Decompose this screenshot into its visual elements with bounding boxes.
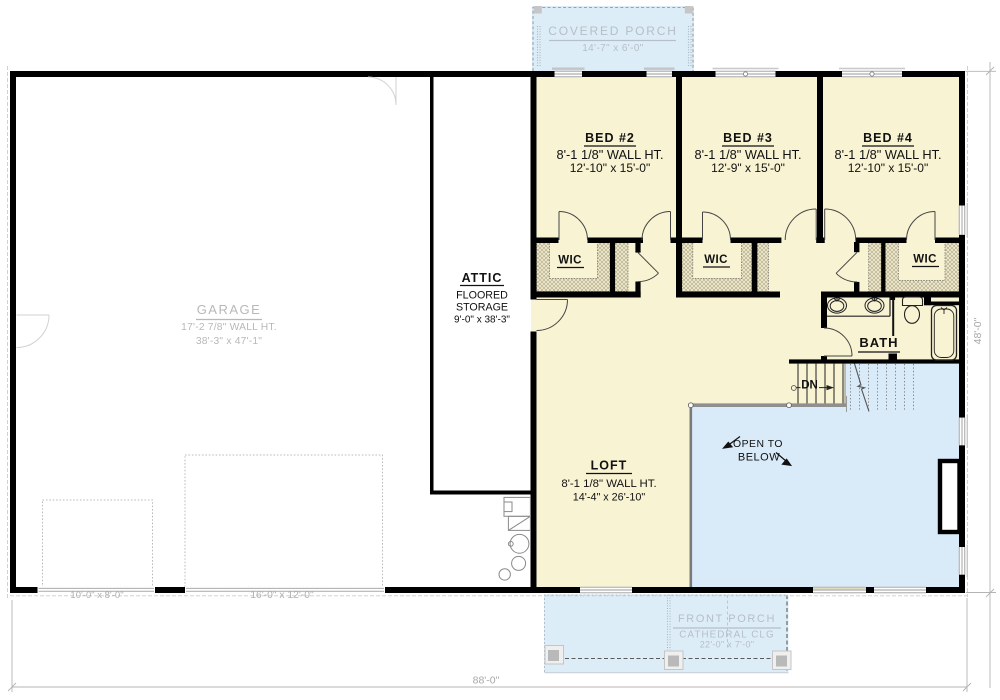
svg-text:WIC: WIC (704, 254, 728, 266)
svg-text:8'-1 1/8" WALL HT.: 8'-1 1/8" WALL HT. (694, 147, 801, 162)
svg-text:9'-0" x 38'-3": 9'-0" x 38'-3" (454, 315, 510, 326)
svg-text:88'-0": 88'-0" (473, 675, 500, 687)
svg-text:38'-3" x 47'-1": 38'-3" x 47'-1" (196, 336, 262, 347)
svg-text:LOFT: LOFT (591, 459, 628, 473)
svg-text:48'-0": 48'-0" (972, 317, 984, 344)
svg-text:WIC: WIC (913, 254, 937, 266)
svg-text:BED #4: BED #4 (863, 131, 913, 145)
svg-text:10'-0" x 8'-0": 10'-0" x 8'-0" (70, 590, 123, 601)
svg-text:BED #3: BED #3 (723, 131, 773, 145)
svg-text:WIC: WIC (558, 255, 582, 267)
svg-text:12'-10" x 15'-0": 12'-10" x 15'-0" (848, 161, 928, 175)
svg-text:COVERED PORCH: COVERED PORCH (548, 24, 677, 38)
svg-text:GARAGE: GARAGE (197, 302, 262, 317)
svg-text:14'-4" x 26'-10": 14'-4" x 26'-10" (573, 492, 646, 504)
svg-text:FRONT PORCH: FRONT PORCH (678, 613, 776, 625)
svg-text:FLOORED: FLOORED (456, 290, 508, 302)
svg-text:22'-0" x 7'-0": 22'-0" x 7'-0" (700, 640, 755, 650)
svg-text:OPEN TO: OPEN TO (733, 439, 783, 450)
svg-text:12'-10" x 15'-0": 12'-10" x 15'-0" (570, 161, 650, 175)
svg-text:STORAGE: STORAGE (456, 302, 508, 314)
svg-text:12'-9" x 15'-0": 12'-9" x 15'-0" (711, 161, 785, 175)
svg-text:8'-1 1/8" WALL HT.: 8'-1 1/8" WALL HT. (561, 478, 656, 490)
svg-text:ATTIC: ATTIC (462, 271, 503, 285)
svg-text:17'-2 7/8" WALL HT.: 17'-2 7/8" WALL HT. (181, 322, 277, 333)
svg-text:14'-7" x 6'-0": 14'-7" x 6'-0" (582, 43, 644, 54)
svg-text:8'-1 1/8" WALL HT.: 8'-1 1/8" WALL HT. (556, 147, 663, 162)
svg-text:DN: DN (801, 380, 818, 392)
svg-text:BATH: BATH (859, 335, 898, 350)
svg-text:8'-1 1/8" WALL HT.: 8'-1 1/8" WALL HT. (834, 147, 941, 162)
svg-text:16'-0" x 12'-0": 16'-0" x 12'-0" (250, 590, 314, 601)
svg-text:BED #2: BED #2 (585, 131, 635, 145)
svg-text:BELOW: BELOW (738, 452, 780, 464)
